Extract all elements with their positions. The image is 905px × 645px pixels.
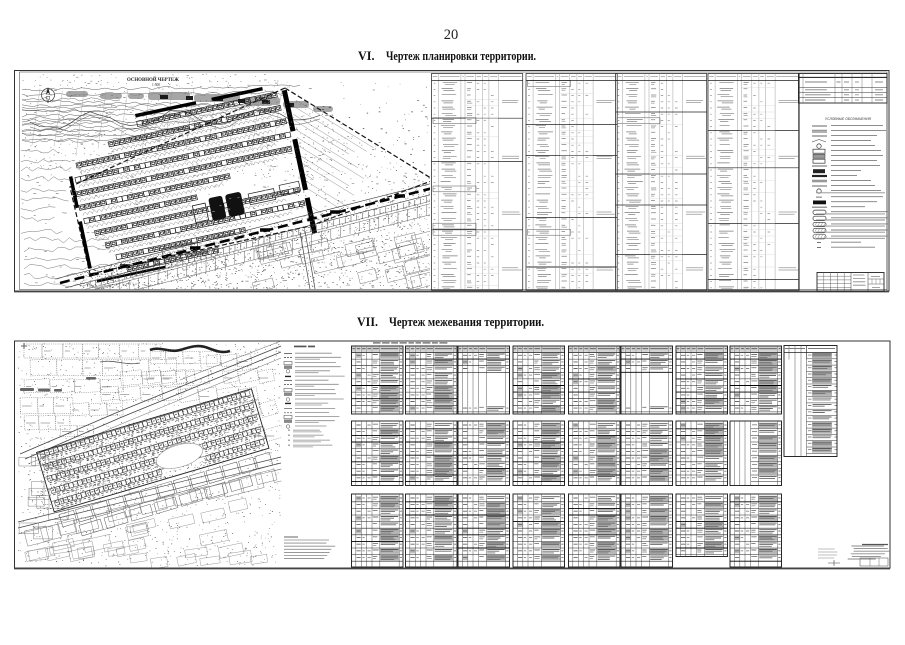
- svg-text:УСЛОВНЫЕ ОБОЗНАЧЕНИЯ: УСЛОВНЫЕ ОБОЗНАЧЕНИЯ: [825, 116, 871, 121]
- svg-text:VII.: VII.: [357, 314, 378, 329]
- svg-text:20: 20: [444, 27, 459, 43]
- svg-text:VI.: VI.: [358, 48, 375, 63]
- svg-text:1:500: 1:500: [152, 82, 160, 87]
- svg-text:Чертеж планировки территории.: Чертеж планировки территории.: [386, 48, 536, 63]
- svg-text:Чертеж межевания территории.: Чертеж межевания территории.: [389, 314, 544, 329]
